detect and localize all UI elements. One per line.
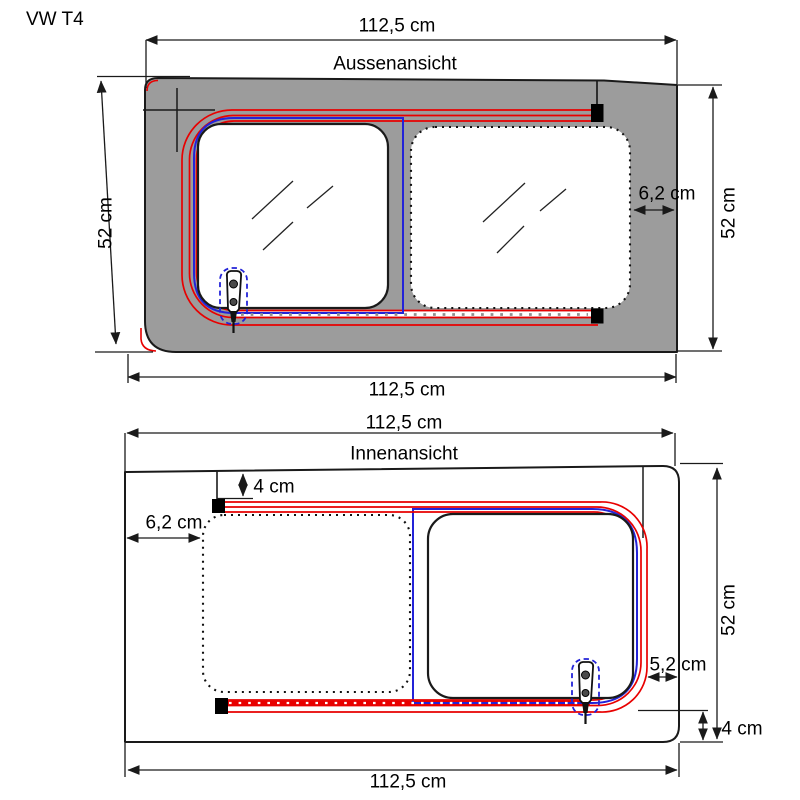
inside-offset-top-label: 4 cm [253, 478, 294, 497]
sliding-pane-outside [411, 127, 630, 308]
inside-view-label: Innenansicht [350, 445, 458, 464]
fixed-pane-inside [428, 514, 633, 698]
frame-stop-top-inside [212, 499, 225, 513]
inside-offset-slider-label: 5,2 cm [649, 656, 706, 675]
outside-dim-left-label: 52 cm [97, 197, 116, 249]
inside-view [125, 433, 723, 777]
vw-t4-window-drawing: VW T4 112,5 cm Aussenansicht 52 cm 52 cm… [0, 0, 800, 800]
outside-dim-top-label: 112,5 cm [359, 17, 436, 36]
outside-dim-right-label: 52 cm [720, 187, 739, 239]
seal-band-top-inside [222, 503, 594, 506]
outside-view [95, 40, 722, 383]
sliding-pane-inside [203, 515, 410, 692]
frame-stop-bottom [591, 309, 604, 324]
drawing-title: VW T4 [26, 10, 84, 29]
inside-dim-right-label: 52 cm [720, 584, 739, 636]
inside-offset-left-label: 6,2 cm [145, 514, 202, 533]
inside-dim-top-label: 112,5 cm [366, 414, 443, 433]
frame-stop-bottom-inside [215, 698, 228, 714]
outside-view-label: Aussenansicht [333, 55, 457, 74]
inside-dim-bottom-label: 112,5 cm [370, 773, 447, 792]
frame-stop-top [591, 104, 604, 122]
outside-frame-offset-label: 6,2 cm [638, 185, 695, 204]
inside-offset-bottom-label: 4 cm [721, 720, 762, 739]
outside-dim-bottom-label: 112,5 cm [369, 381, 446, 400]
seal-band-white-inside [222, 706, 594, 711]
